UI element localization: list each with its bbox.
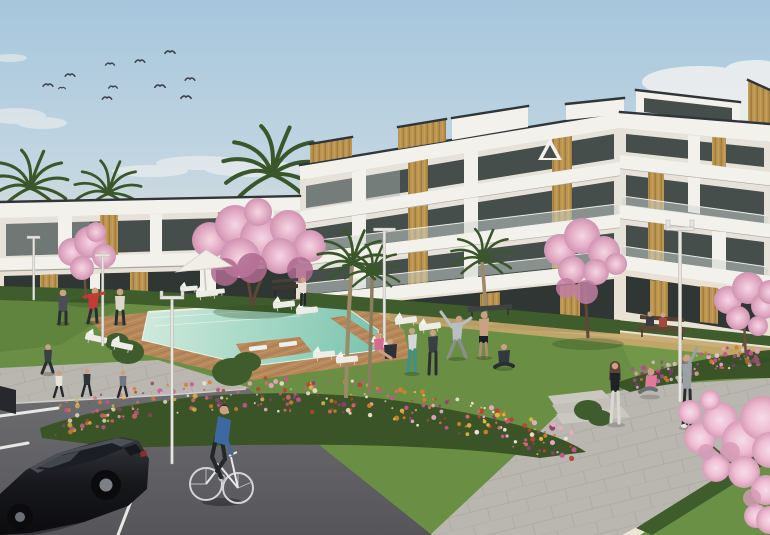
render-canvas (0, 0, 770, 535)
cyclist-head (220, 406, 229, 415)
parked-car-sliver (0, 386, 16, 414)
car-rim (15, 512, 25, 522)
car-rim (100, 479, 113, 492)
architectural-render (0, 0, 770, 535)
